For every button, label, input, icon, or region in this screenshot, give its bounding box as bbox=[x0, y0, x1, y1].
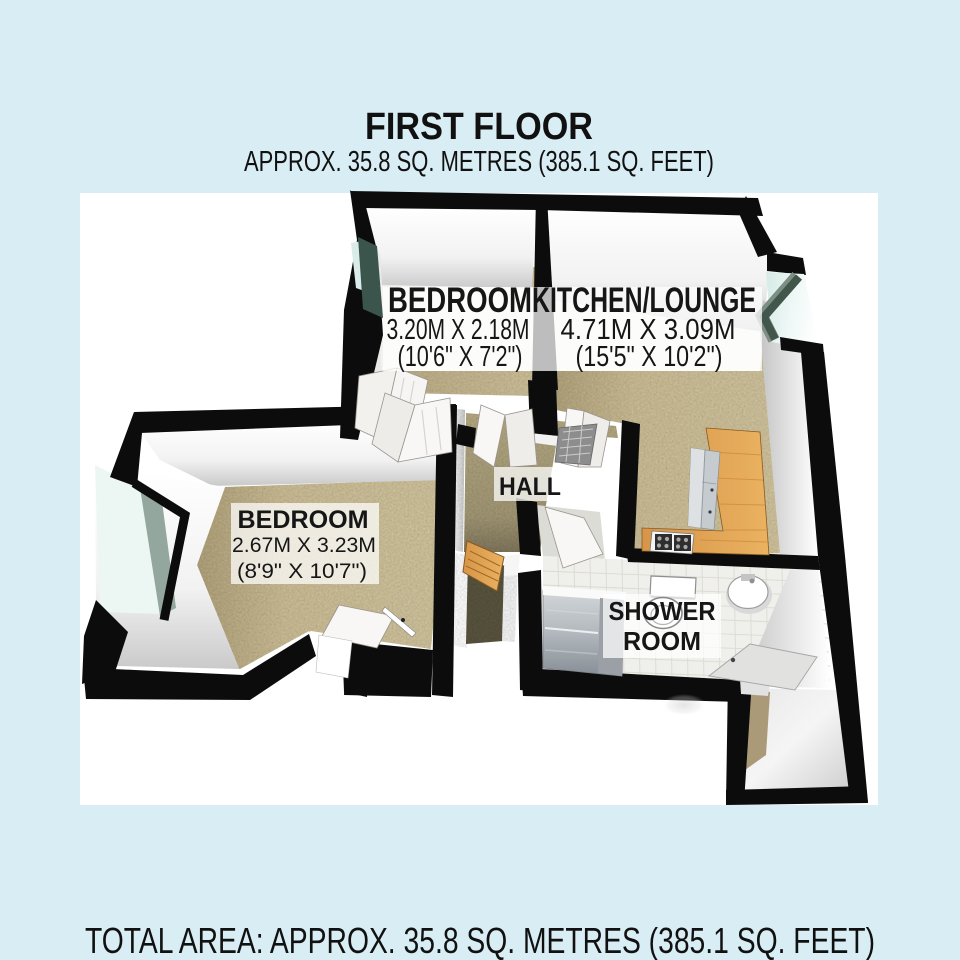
svg-text:HALL: HALL bbox=[499, 473, 561, 501]
svg-text:APPROX. 35.8 SQ. METRES (385.: APPROX. 35.8 SQ. METRES (385.1 SQ. FEET) bbox=[244, 146, 714, 178]
svg-text:(8'9" X 10'7"): (8'9" X 10'7") bbox=[237, 560, 367, 583]
svg-text:(10'6" X 7'2"): (10'6" X 7'2") bbox=[398, 341, 523, 373]
svg-text:TOTAL AREA: APPROX. 35.8 SQ.: TOTAL AREA: APPROX. 35.8 SQ. METRES (385… bbox=[85, 920, 875, 960]
svg-text:BEDROOM: BEDROOM bbox=[238, 506, 369, 534]
svg-text:ROOM: ROOM bbox=[623, 626, 701, 656]
svg-text:SHOWER: SHOWER bbox=[609, 596, 716, 626]
svg-text:(15'5" X 10'2"): (15'5" X 10'2") bbox=[576, 341, 723, 373]
svg-text:2.67M X 3.23M: 2.67M X 3.23M bbox=[232, 534, 376, 557]
svg-text:FIRST FLOOR: FIRST FLOOR bbox=[365, 106, 593, 148]
